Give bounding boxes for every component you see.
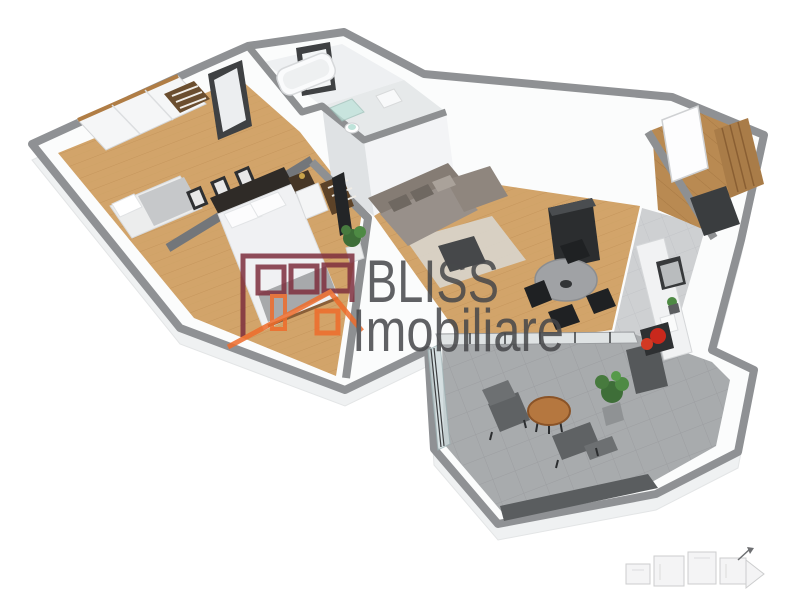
minimap-block xyxy=(654,556,684,586)
plant-leaves xyxy=(341,225,351,235)
scene-canvas: BLISS Imobiliare xyxy=(0,0,800,600)
table-leg xyxy=(560,280,572,288)
table-lamp xyxy=(299,173,305,179)
plant-leaves xyxy=(354,226,366,238)
floorplan-render: BLISS Imobiliare xyxy=(0,0,800,600)
minimap-block xyxy=(688,552,716,584)
watermark-brand-subtitle: Imobiliare xyxy=(352,297,564,364)
toilet-lid xyxy=(348,124,356,130)
red-bowl xyxy=(641,338,653,350)
minimap-block xyxy=(720,558,746,584)
minimap-block xyxy=(626,564,650,584)
